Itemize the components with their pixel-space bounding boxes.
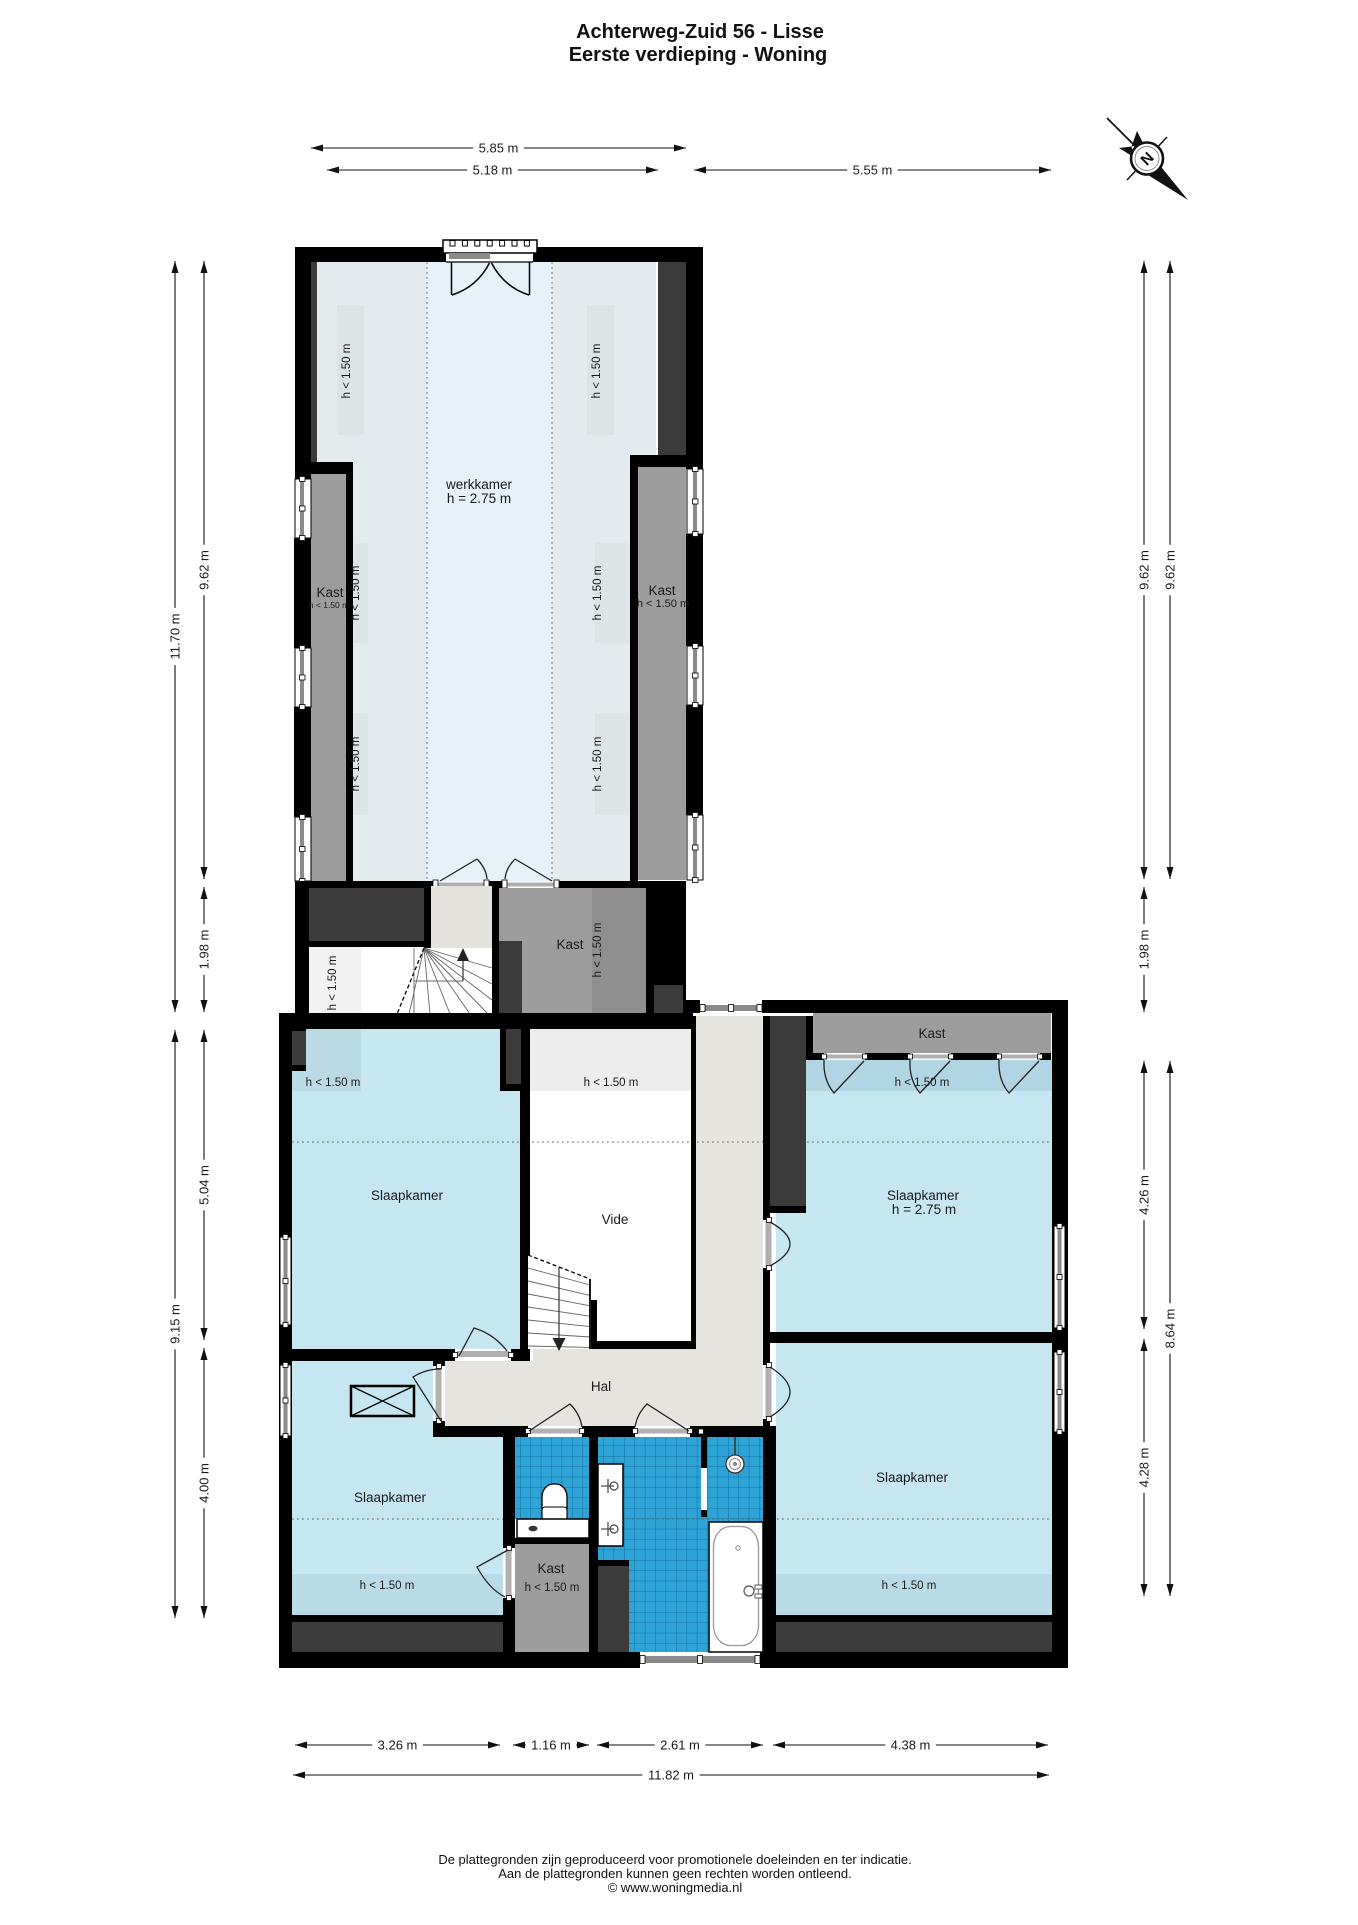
svg-text:h < 1.50 m: h < 1.50 m (341, 344, 353, 399)
svg-text:Slaapkamer: Slaapkamer (371, 1188, 444, 1203)
svg-text:11.70 m: 11.70 m (168, 613, 183, 659)
svg-text:Eerste verdieping - Woning: Eerste verdieping - Woning (569, 44, 828, 66)
svg-text:5.04 m: 5.04 m (197, 1165, 212, 1205)
svg-text:© www.woningmedia.nl: © www.woningmedia.nl (608, 1880, 743, 1895)
svg-text:h < 1.50 m: h < 1.50 m (591, 344, 603, 399)
svg-text:h < 1.50 m: h < 1.50 m (592, 923, 604, 978)
svg-text:h = 2.75 m: h = 2.75 m (447, 491, 511, 506)
svg-text:h < 1.50 m: h < 1.50 m (350, 566, 362, 621)
svg-text:5.85 m: 5.85 m (479, 141, 519, 156)
svg-text:Hal: Hal (591, 1379, 611, 1394)
svg-text:h < 1.50 m: h < 1.50 m (306, 1077, 361, 1089)
svg-text:Slaapkamer: Slaapkamer (887, 1188, 960, 1203)
svg-text:Aan de plattegronden kunnen ge: Aan de plattegronden kunnen geen rechten… (498, 1866, 851, 1881)
svg-text:De plattegronden zijn geproduc: De plattegronden zijn geproduceerd voor … (438, 1852, 911, 1867)
svg-text:Kast: Kast (648, 583, 675, 598)
svg-text:4.28 m: 4.28 m (1137, 1448, 1152, 1488)
svg-text:Vide: Vide (602, 1212, 629, 1227)
svg-text:2.61 m: 2.61 m (660, 1738, 700, 1753)
svg-text:Kast: Kast (918, 1026, 945, 1041)
svg-text:11.82 m: 11.82 m (648, 1768, 694, 1783)
svg-text:5.18 m: 5.18 m (473, 163, 513, 178)
svg-text:werkkamer: werkkamer (445, 477, 513, 492)
svg-text:1.16 m: 1.16 m (531, 1738, 571, 1753)
svg-text:1.98 m: 1.98 m (197, 930, 212, 970)
svg-text:Kast: Kast (537, 1561, 564, 1576)
svg-text:4.38 m: 4.38 m (891, 1738, 931, 1753)
svg-text:Achterweg-Zuid 56 - Lisse: Achterweg-Zuid 56 - Lisse (576, 21, 824, 43)
svg-text:h < 1.50 m: h < 1.50 m (882, 1580, 937, 1592)
svg-text:Kast: Kast (316, 585, 343, 600)
svg-text:Kast: Kast (556, 937, 583, 952)
svg-text:h < 1.50 m: h < 1.50 m (309, 600, 349, 610)
svg-text:4.26 m: 4.26 m (1137, 1175, 1152, 1215)
svg-text:4.00 m: 4.00 m (197, 1463, 212, 1503)
svg-text:h < 1.50 m: h < 1.50 m (350, 737, 362, 792)
svg-text:9.62 m: 9.62 m (197, 550, 212, 590)
svg-text:8.64 m: 8.64 m (1163, 1309, 1178, 1349)
svg-text:Slaapkamer: Slaapkamer (354, 1490, 427, 1505)
svg-text:3.26 m: 3.26 m (378, 1738, 418, 1753)
svg-text:h < 1.50 m: h < 1.50 m (637, 598, 689, 610)
svg-text:h < 1.50 m: h < 1.50 m (525, 1582, 580, 1594)
svg-text:h < 1.50 m: h < 1.50 m (327, 956, 339, 1011)
svg-text:h < 1.50 m: h < 1.50 m (592, 566, 604, 621)
svg-text:Slaapkamer: Slaapkamer (876, 1470, 949, 1485)
svg-text:h < 1.50 m: h < 1.50 m (360, 1580, 415, 1592)
svg-text:9.62 m: 9.62 m (1137, 550, 1152, 590)
svg-text:1.98 m: 1.98 m (1137, 930, 1152, 970)
svg-text:h < 1.50 m: h < 1.50 m (895, 1077, 950, 1089)
svg-text:9.15 m: 9.15 m (168, 1304, 183, 1344)
svg-text:h < 1.50 m: h < 1.50 m (592, 737, 604, 792)
svg-text:h = 2.75 m: h = 2.75 m (892, 1202, 956, 1217)
svg-text:h < 1.50 m: h < 1.50 m (584, 1077, 639, 1089)
svg-text:5.55 m: 5.55 m (853, 163, 893, 178)
svg-text:9.62 m: 9.62 m (1163, 550, 1178, 590)
